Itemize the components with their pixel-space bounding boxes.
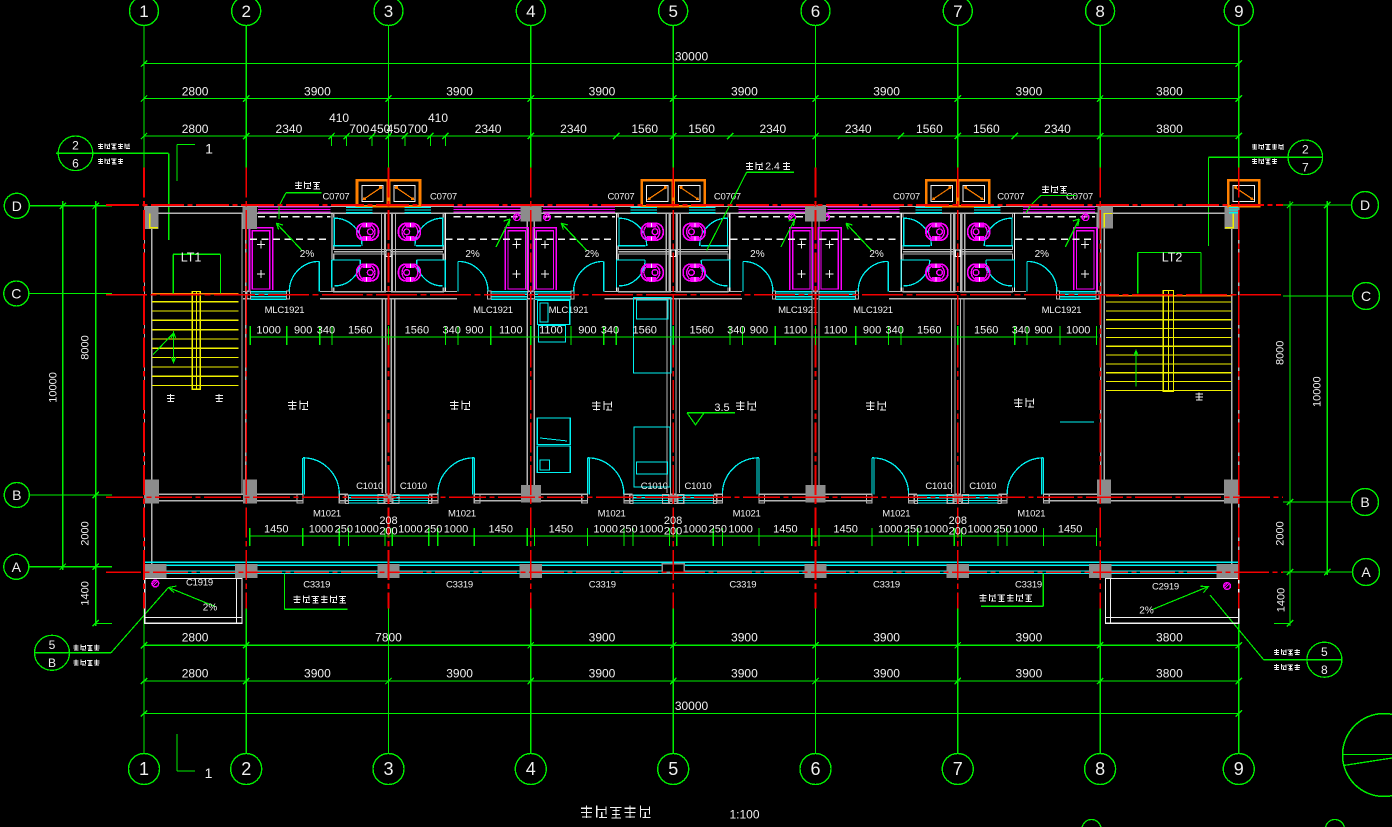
svg-text:2%: 2% bbox=[869, 249, 884, 260]
svg-text:9: 9 bbox=[1234, 759, 1244, 779]
svg-text:700: 700 bbox=[408, 122, 428, 136]
svg-text:30000: 30000 bbox=[675, 50, 709, 64]
svg-text:B: B bbox=[48, 656, 56, 670]
svg-text:4: 4 bbox=[526, 759, 536, 779]
svg-text:340: 340 bbox=[886, 325, 904, 337]
svg-text:200: 200 bbox=[664, 526, 682, 538]
svg-text:2: 2 bbox=[1302, 143, 1309, 157]
svg-text:1450: 1450 bbox=[489, 524, 513, 536]
svg-text:3900: 3900 bbox=[1016, 667, 1043, 681]
svg-text:2340: 2340 bbox=[276, 122, 303, 136]
svg-text:1560: 1560 bbox=[348, 325, 372, 337]
svg-text:MLC1921: MLC1921 bbox=[549, 305, 589, 316]
svg-text:C2919: C2919 bbox=[1152, 582, 1179, 593]
svg-text:250: 250 bbox=[709, 524, 727, 536]
svg-text:10000: 10000 bbox=[1312, 376, 1324, 407]
svg-text:450: 450 bbox=[387, 122, 407, 136]
svg-text:340: 340 bbox=[1012, 325, 1030, 337]
svg-text:1: 1 bbox=[205, 765, 213, 781]
svg-text:A: A bbox=[12, 559, 22, 575]
svg-text:1400: 1400 bbox=[80, 581, 92, 605]
svg-text:M1021: M1021 bbox=[733, 509, 761, 520]
svg-text:MLC1921: MLC1921 bbox=[1042, 305, 1082, 316]
svg-text:C0707: C0707 bbox=[714, 192, 741, 203]
svg-text:7: 7 bbox=[1302, 161, 1309, 175]
svg-text:2%: 2% bbox=[203, 603, 218, 614]
svg-text:B: B bbox=[12, 487, 21, 503]
svg-text:1000: 1000 bbox=[398, 524, 422, 536]
svg-text:30000: 30000 bbox=[675, 699, 709, 713]
svg-text:C1010: C1010 bbox=[400, 481, 427, 492]
svg-text:8: 8 bbox=[1095, 2, 1104, 21]
svg-text:340: 340 bbox=[727, 325, 745, 337]
svg-text:2.4: 2.4 bbox=[765, 161, 780, 173]
svg-text:2: 2 bbox=[72, 139, 79, 153]
svg-text:C0707: C0707 bbox=[997, 192, 1024, 203]
svg-text:250: 250 bbox=[424, 524, 442, 536]
svg-text:1450: 1450 bbox=[833, 524, 857, 536]
svg-text:MLC1921: MLC1921 bbox=[473, 305, 513, 316]
svg-text:MLC1921: MLC1921 bbox=[265, 305, 305, 316]
svg-text:3900: 3900 bbox=[1016, 631, 1043, 645]
svg-text:6: 6 bbox=[810, 759, 820, 779]
svg-text:700: 700 bbox=[349, 122, 369, 136]
svg-text:900: 900 bbox=[578, 325, 596, 337]
svg-text:8000: 8000 bbox=[1275, 341, 1287, 365]
svg-text:8000: 8000 bbox=[80, 335, 92, 359]
svg-text:900: 900 bbox=[294, 325, 312, 337]
svg-text:2340: 2340 bbox=[1044, 122, 1071, 136]
svg-text:1000: 1000 bbox=[924, 524, 948, 536]
svg-text:1000: 1000 bbox=[878, 524, 902, 536]
svg-text:3900: 3900 bbox=[1016, 85, 1043, 99]
svg-text:C: C bbox=[1361, 288, 1371, 304]
svg-text:1000: 1000 bbox=[309, 524, 333, 536]
svg-text:1450: 1450 bbox=[264, 524, 288, 536]
svg-text:1560: 1560 bbox=[917, 325, 941, 337]
svg-text:2340: 2340 bbox=[845, 122, 872, 136]
svg-text:C0707: C0707 bbox=[323, 192, 350, 203]
svg-text:MLC1921: MLC1921 bbox=[853, 305, 893, 316]
svg-text:1100: 1100 bbox=[539, 325, 563, 337]
svg-text:1450: 1450 bbox=[773, 524, 797, 536]
svg-text:3900: 3900 bbox=[873, 85, 900, 99]
svg-text:2%: 2% bbox=[585, 249, 600, 260]
svg-text:10000: 10000 bbox=[48, 372, 60, 403]
svg-text:1560: 1560 bbox=[631, 122, 658, 136]
svg-text:340: 340 bbox=[601, 325, 619, 337]
svg-text:340: 340 bbox=[317, 325, 335, 337]
svg-text:3900: 3900 bbox=[304, 667, 331, 681]
svg-text:3900: 3900 bbox=[446, 85, 473, 99]
svg-text:3: 3 bbox=[383, 759, 393, 779]
svg-text:900: 900 bbox=[750, 325, 768, 337]
svg-text:3900: 3900 bbox=[731, 631, 758, 645]
svg-text:D: D bbox=[12, 198, 22, 214]
svg-text:340: 340 bbox=[443, 325, 461, 337]
svg-text:2%: 2% bbox=[1139, 606, 1154, 617]
svg-text:2800: 2800 bbox=[182, 631, 209, 645]
svg-text:1000: 1000 bbox=[639, 524, 663, 536]
svg-text:5: 5 bbox=[668, 2, 677, 21]
svg-text:200: 200 bbox=[949, 526, 967, 538]
svg-text:4: 4 bbox=[526, 2, 535, 21]
svg-text:1450: 1450 bbox=[549, 524, 573, 536]
svg-text:3900: 3900 bbox=[873, 631, 900, 645]
svg-text:LT2: LT2 bbox=[1162, 251, 1183, 265]
svg-text:1560: 1560 bbox=[689, 325, 713, 337]
svg-text:900: 900 bbox=[863, 325, 881, 337]
svg-text:250: 250 bbox=[904, 524, 922, 536]
svg-text:C3319: C3319 bbox=[1015, 580, 1042, 591]
svg-text:250: 250 bbox=[335, 524, 353, 536]
svg-text:1560: 1560 bbox=[916, 122, 943, 136]
svg-text:C3319: C3319 bbox=[446, 580, 473, 591]
svg-text:3900: 3900 bbox=[304, 85, 331, 99]
svg-text:1560: 1560 bbox=[405, 325, 429, 337]
svg-text:1000: 1000 bbox=[593, 524, 617, 536]
svg-text:2: 2 bbox=[241, 2, 250, 21]
svg-text:D: D bbox=[1360, 197, 1370, 213]
svg-text:250: 250 bbox=[993, 524, 1011, 536]
svg-text:1000: 1000 bbox=[728, 524, 752, 536]
svg-text:2%: 2% bbox=[465, 249, 480, 260]
svg-text:7: 7 bbox=[953, 759, 963, 779]
svg-text:MLC1921: MLC1921 bbox=[778, 305, 818, 316]
svg-text:C: C bbox=[11, 286, 21, 302]
svg-text:C3319: C3319 bbox=[303, 580, 330, 591]
svg-text:5: 5 bbox=[668, 759, 678, 779]
svg-text:1000: 1000 bbox=[354, 524, 378, 536]
svg-text:C1919: C1919 bbox=[186, 578, 213, 589]
svg-text:M1021: M1021 bbox=[1017, 509, 1045, 520]
svg-text:1:100: 1:100 bbox=[729, 808, 759, 822]
svg-text:900: 900 bbox=[1034, 325, 1052, 337]
svg-text:2000: 2000 bbox=[80, 521, 92, 545]
svg-text:7800: 7800 bbox=[375, 631, 402, 645]
svg-text:1100: 1100 bbox=[784, 325, 808, 337]
svg-text:C1010: C1010 bbox=[356, 481, 383, 492]
svg-text:B: B bbox=[1360, 494, 1369, 510]
svg-text:6: 6 bbox=[811, 2, 820, 21]
svg-text:1000: 1000 bbox=[444, 524, 468, 536]
svg-text:M1021: M1021 bbox=[598, 509, 626, 520]
svg-text:C1010: C1010 bbox=[685, 481, 712, 492]
svg-text:7: 7 bbox=[953, 2, 962, 21]
svg-text:C3319: C3319 bbox=[729, 580, 756, 591]
svg-text:2340: 2340 bbox=[759, 122, 786, 136]
svg-text:2%: 2% bbox=[300, 249, 315, 260]
svg-text:1450: 1450 bbox=[1058, 524, 1082, 536]
svg-text:3.5: 3.5 bbox=[714, 402, 729, 414]
svg-text:1000: 1000 bbox=[1066, 325, 1090, 337]
svg-text:M1021: M1021 bbox=[882, 509, 910, 520]
svg-text:A: A bbox=[1361, 564, 1371, 580]
svg-text:C0707: C0707 bbox=[608, 192, 635, 203]
svg-text:8: 8 bbox=[1095, 759, 1105, 779]
svg-text:1: 1 bbox=[205, 141, 213, 157]
svg-text:C1010: C1010 bbox=[925, 481, 952, 492]
svg-text:2800: 2800 bbox=[182, 667, 209, 681]
svg-text:250: 250 bbox=[619, 524, 637, 536]
svg-text:3900: 3900 bbox=[873, 667, 900, 681]
svg-text:1560: 1560 bbox=[688, 122, 715, 136]
svg-text:M1021: M1021 bbox=[313, 509, 341, 520]
svg-text:M1021: M1021 bbox=[448, 509, 476, 520]
svg-text:8: 8 bbox=[1321, 663, 1328, 677]
svg-text:3900: 3900 bbox=[589, 667, 616, 681]
svg-text:200: 200 bbox=[379, 526, 397, 538]
svg-text:9: 9 bbox=[1234, 2, 1243, 21]
svg-text:3900: 3900 bbox=[589, 85, 616, 99]
svg-text:C0707: C0707 bbox=[893, 192, 920, 203]
svg-text:1560: 1560 bbox=[974, 325, 998, 337]
svg-text:C1010: C1010 bbox=[969, 481, 996, 492]
svg-text:3900: 3900 bbox=[731, 667, 758, 681]
svg-text:3900: 3900 bbox=[731, 85, 758, 99]
svg-text:3800: 3800 bbox=[1156, 631, 1183, 645]
svg-text:2: 2 bbox=[241, 759, 251, 779]
svg-text:C1010: C1010 bbox=[641, 481, 668, 492]
svg-text:C0707: C0707 bbox=[1066, 192, 1093, 203]
svg-text:410: 410 bbox=[428, 111, 448, 125]
svg-text:1000: 1000 bbox=[967, 524, 991, 536]
svg-text:1100: 1100 bbox=[824, 325, 848, 337]
svg-text:2%: 2% bbox=[1035, 249, 1050, 260]
svg-text:1: 1 bbox=[139, 2, 148, 21]
svg-text:3900: 3900 bbox=[589, 631, 616, 645]
svg-text:1000: 1000 bbox=[1013, 524, 1037, 536]
svg-text:C3319: C3319 bbox=[589, 580, 616, 591]
svg-text:3: 3 bbox=[384, 2, 393, 21]
svg-text:2800: 2800 bbox=[182, 122, 209, 136]
svg-text:2000: 2000 bbox=[1275, 521, 1287, 545]
svg-text:1560: 1560 bbox=[632, 325, 656, 337]
svg-text:2340: 2340 bbox=[560, 122, 587, 136]
svg-text:1100: 1100 bbox=[499, 325, 523, 337]
svg-text:3800: 3800 bbox=[1156, 85, 1183, 99]
svg-text:5: 5 bbox=[49, 638, 56, 652]
svg-text:900: 900 bbox=[465, 325, 483, 337]
svg-text:5: 5 bbox=[1321, 645, 1328, 659]
svg-text:6: 6 bbox=[72, 157, 79, 171]
svg-text:1400: 1400 bbox=[1276, 588, 1288, 612]
svg-text:1000: 1000 bbox=[683, 524, 707, 536]
svg-text:C0707: C0707 bbox=[430, 192, 457, 203]
svg-text:1000: 1000 bbox=[256, 325, 280, 337]
svg-text:1: 1 bbox=[139, 759, 149, 779]
svg-text:3900: 3900 bbox=[446, 667, 473, 681]
svg-text:3800: 3800 bbox=[1156, 667, 1183, 681]
svg-text:2800: 2800 bbox=[182, 85, 209, 99]
svg-text:3800: 3800 bbox=[1156, 122, 1183, 136]
svg-text:C3319: C3319 bbox=[873, 580, 900, 591]
svg-text:2340: 2340 bbox=[475, 122, 502, 136]
svg-text:1560: 1560 bbox=[973, 122, 1000, 136]
svg-text:LT1: LT1 bbox=[181, 251, 202, 265]
svg-text:2%: 2% bbox=[750, 249, 765, 260]
svg-text:410: 410 bbox=[329, 111, 349, 125]
